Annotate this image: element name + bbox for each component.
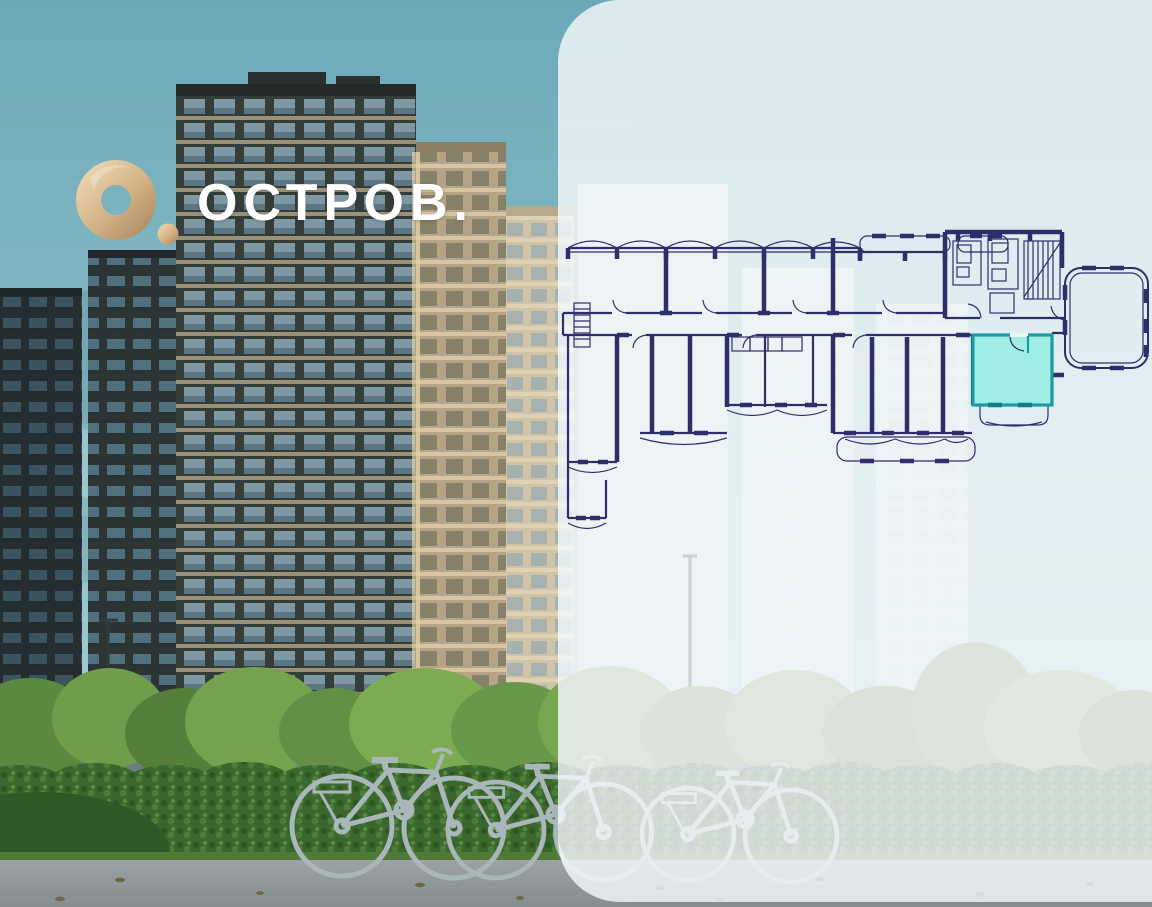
logo-mark-icon (70, 150, 184, 256)
selected-apartment[interactable] (973, 335, 1052, 405)
logo: ОСТРОВ. (70, 150, 474, 256)
page: 1 КОРПУС 1 СЕКЦИЯ 2 ЭТАЖ ОСТРОВ. (0, 0, 1152, 907)
logo-text: ОСТРОВ. (197, 177, 474, 229)
details-panel: 1 КОРПУС 1 СЕКЦИЯ 2 ЭТАЖ (558, 0, 1152, 902)
floor-plan (560, 225, 1152, 545)
floor-plan-thick-walls (568, 232, 1146, 518)
